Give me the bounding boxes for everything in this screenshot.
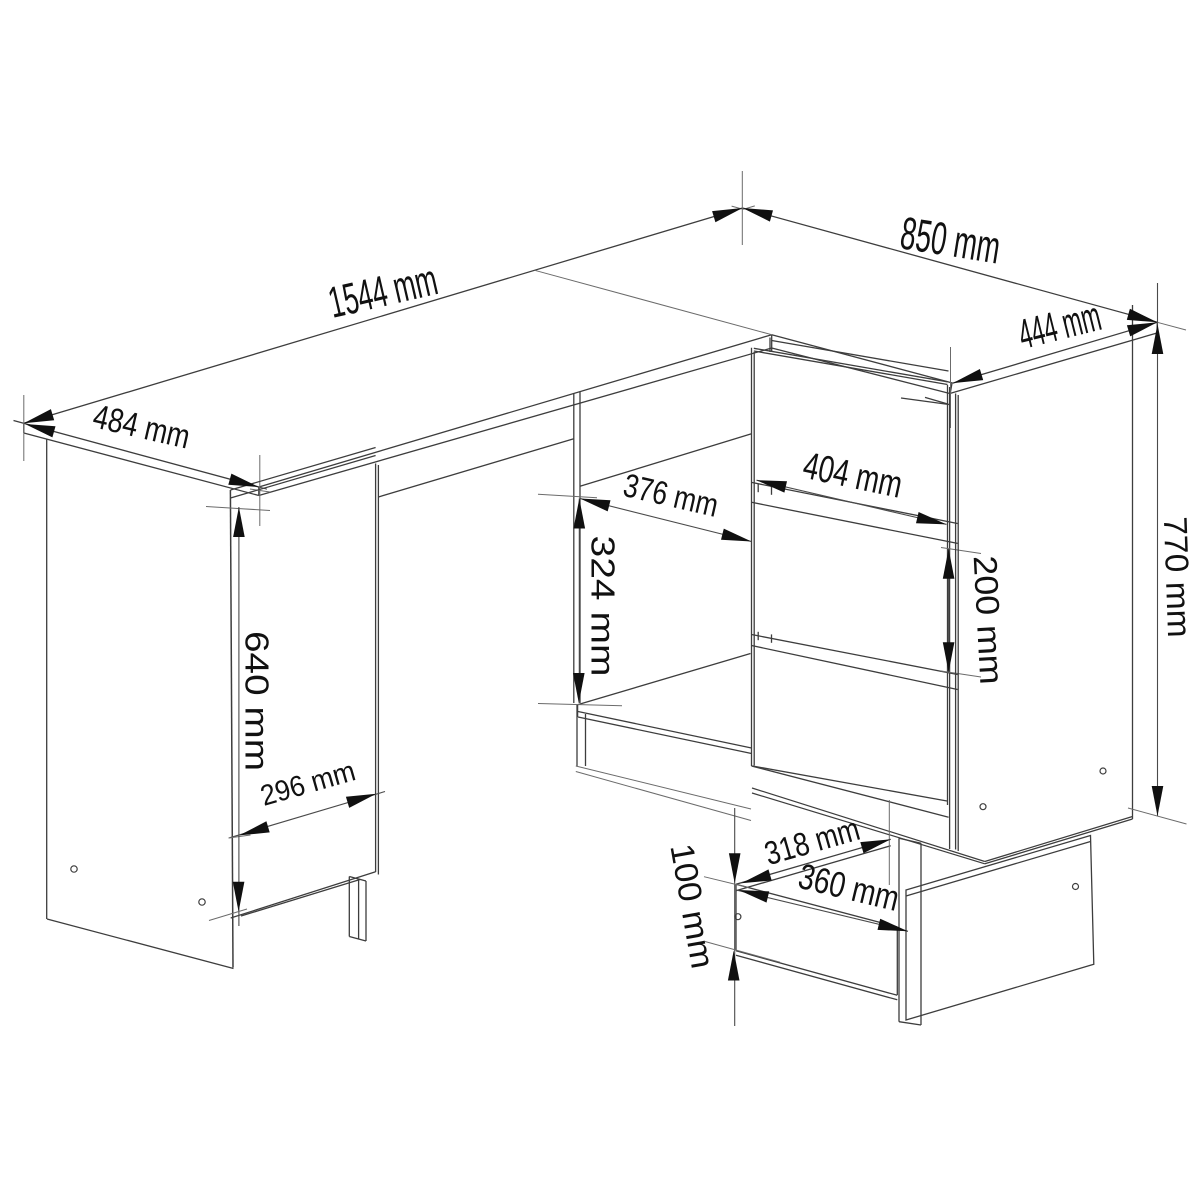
svg-text:770 mm: 770 mm: [1157, 516, 1198, 638]
svg-text:640 mm: 640 mm: [239, 631, 276, 771]
svg-text:200 mm: 200 mm: [967, 555, 1011, 686]
svg-text:324 mm: 324 mm: [585, 536, 622, 677]
